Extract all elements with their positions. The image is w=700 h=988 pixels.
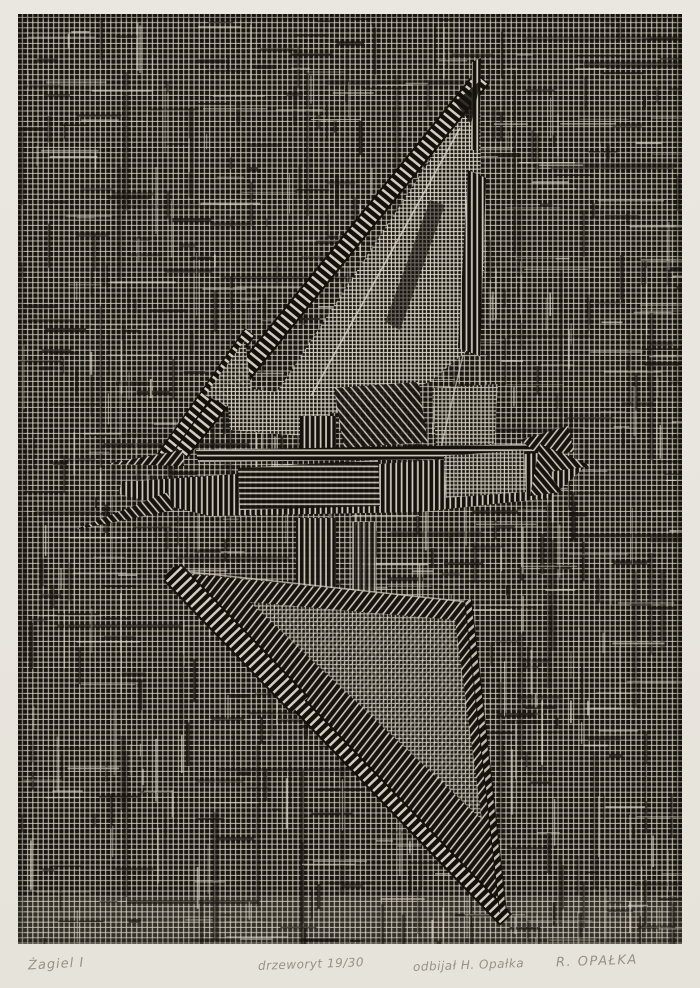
artist-signature: R. OPAŁKA — [556, 953, 638, 971]
title-inscription: Żagiel I — [28, 956, 85, 974]
artwork-photo: Żagiel I drzeworyt 19/30 odbijał H. Opał… — [0, 0, 700, 988]
woodcut-print-image — [0, 0, 700, 988]
